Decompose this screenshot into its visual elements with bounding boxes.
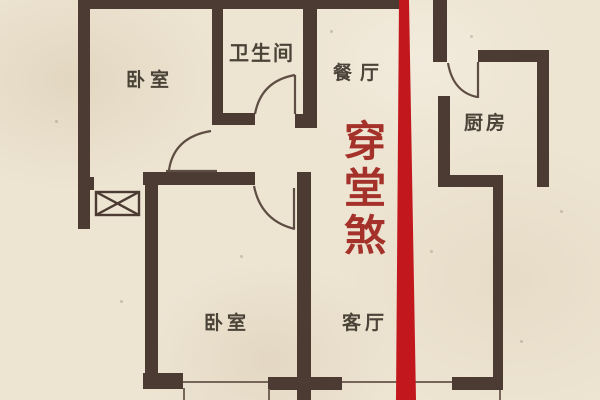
bathroom-door-arc [255,75,295,114]
wall-bottom-middle [268,377,342,390]
wall-bedroom2-corner [143,373,183,389]
room-label-bedroom-bottom: 卧室 [204,314,250,333]
wall-kitchen-bottom [438,175,503,187]
room-label-bedroom-top: 卧室 [126,71,174,90]
bedroom2-door-arc [169,131,211,170]
wall-bedroom2-top [143,172,255,185]
room-label-kitchen: 厨房 [464,114,508,133]
floor-plan-drawing [0,0,600,400]
wall-bathroom-bottom [212,113,255,125]
room-label-living: 客厅 [342,314,388,333]
wall-living-right [493,185,503,390]
room-label-bathroom: 卫生间 [229,44,295,64]
shaft-box [96,192,139,215]
wall-bedroom1-bathroom-divider [212,9,223,125]
wall-kitchen-top [478,50,547,62]
room-label-dining: 餐厅 [333,64,387,83]
living-room-door-arc [254,186,295,229]
draft-line [396,0,416,400]
kitchen-door-arc [448,63,477,97]
wall-top-right-corner [433,0,447,62]
wall-bathroom-right [303,0,317,128]
wall-top [78,0,409,9]
walls [78,0,549,400]
wall-kitchen-right [537,50,549,187]
annotation-chuan-tang-sha: 穿堂煞 [341,120,389,261]
wall-bathroom-door-pier [295,114,304,128]
wall-left [78,0,90,229]
wall-kitchen-left [438,96,450,176]
wall-left-nub [78,177,94,190]
floor-plan-canvas: 卧室 卫生间 餐厅 厨房 卧室 客厅 穿堂煞 [0,0,600,400]
wall-hall-living-divider [297,172,311,400]
wall-bedroom2-left [145,172,158,388]
